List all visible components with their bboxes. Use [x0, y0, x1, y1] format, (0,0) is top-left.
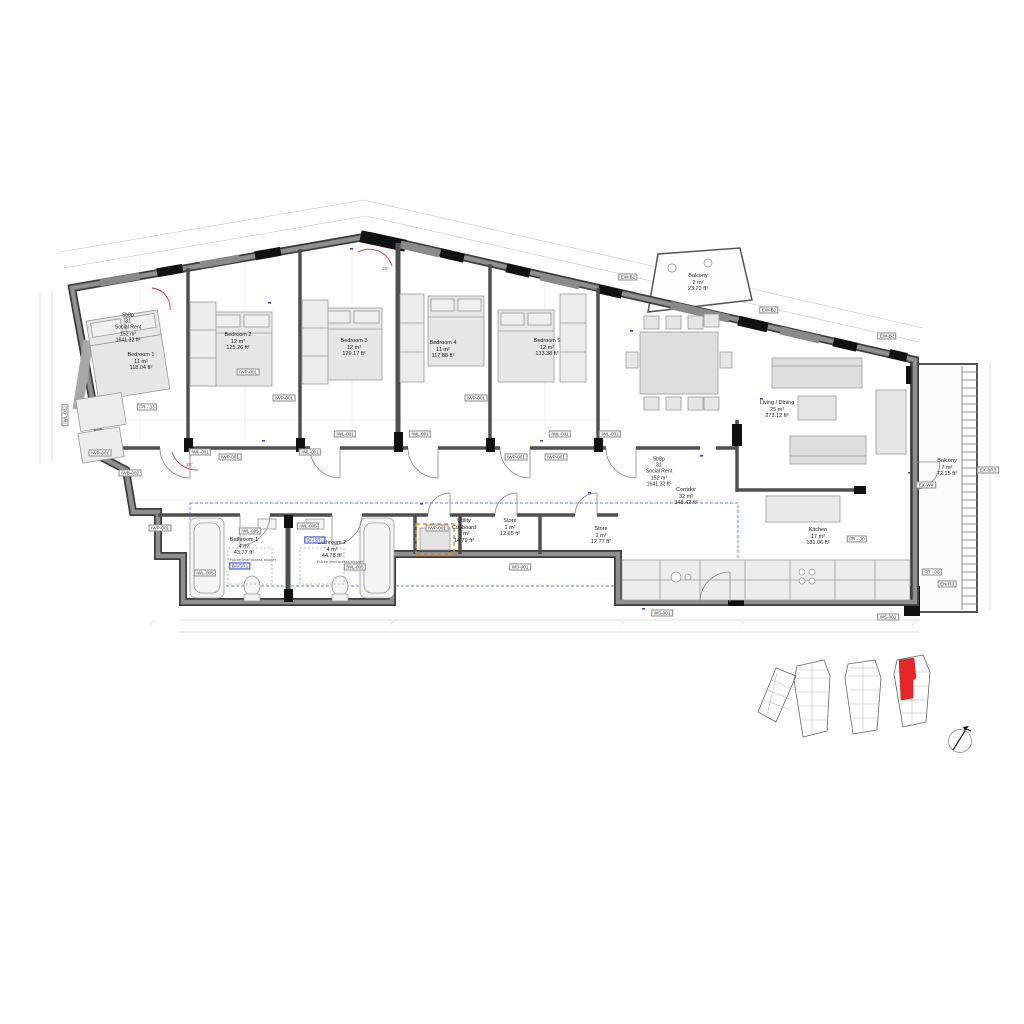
- key-plan-block-3: [845, 660, 881, 734]
- key-plan-block-1: [758, 668, 796, 722]
- bed-bedroom5: [498, 310, 554, 382]
- north-compass: [949, 726, 972, 753]
- bed-bedroom3: [322, 308, 382, 380]
- floor-plan-canvas: 18° 18°: [0, 0, 1024, 1024]
- bathroom-fixtures: [190, 518, 394, 601]
- utility-washer: [416, 524, 454, 554]
- kitchen-units: [622, 496, 910, 600]
- key-plan-block-2: [794, 660, 830, 737]
- swing-angle-label-2: 18°: [382, 266, 389, 271]
- bed-bedroom1: [86, 310, 170, 400]
- floor-plan-drawing: 18° 18°: [0, 0, 1024, 1024]
- dining-table-set: [626, 314, 732, 410]
- highlighted-unit: [899, 658, 916, 700]
- key-plan: [758, 655, 930, 737]
- key-plan-block-4-highlighted: [894, 655, 930, 727]
- bed-bedroom4: [428, 296, 484, 366]
- living-room-furniture: [772, 358, 906, 464]
- bed-bedroom2: [212, 312, 272, 386]
- swing-angle-label-1: 18°: [186, 462, 193, 467]
